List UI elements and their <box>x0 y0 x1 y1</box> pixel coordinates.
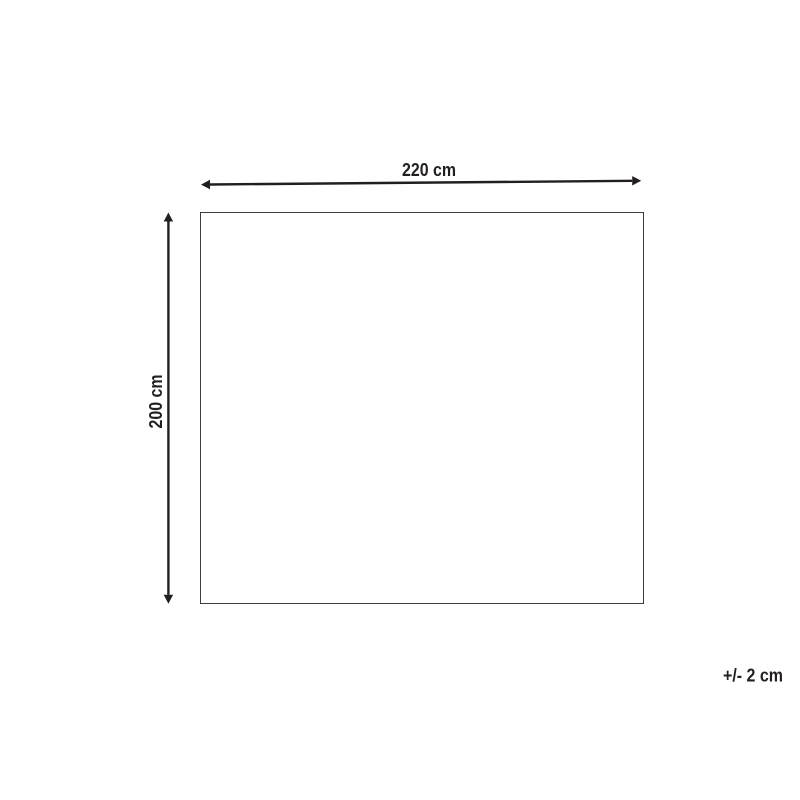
svg-text:200 cm: 200 cm <box>145 375 166 429</box>
svg-text:220 cm: 220 cm <box>402 159 456 180</box>
svg-text:+/- 2 cm: +/- 2 cm <box>723 665 783 686</box>
